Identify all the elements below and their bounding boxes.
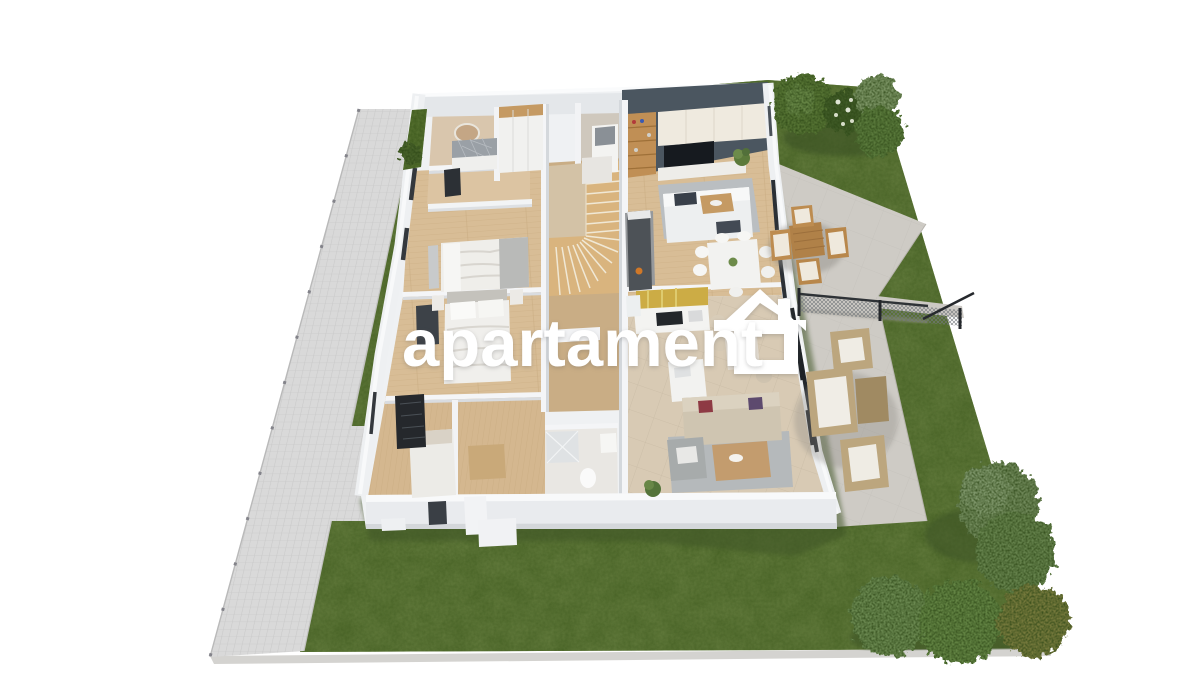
svg-text:apartament: apartament <box>402 306 763 381</box>
